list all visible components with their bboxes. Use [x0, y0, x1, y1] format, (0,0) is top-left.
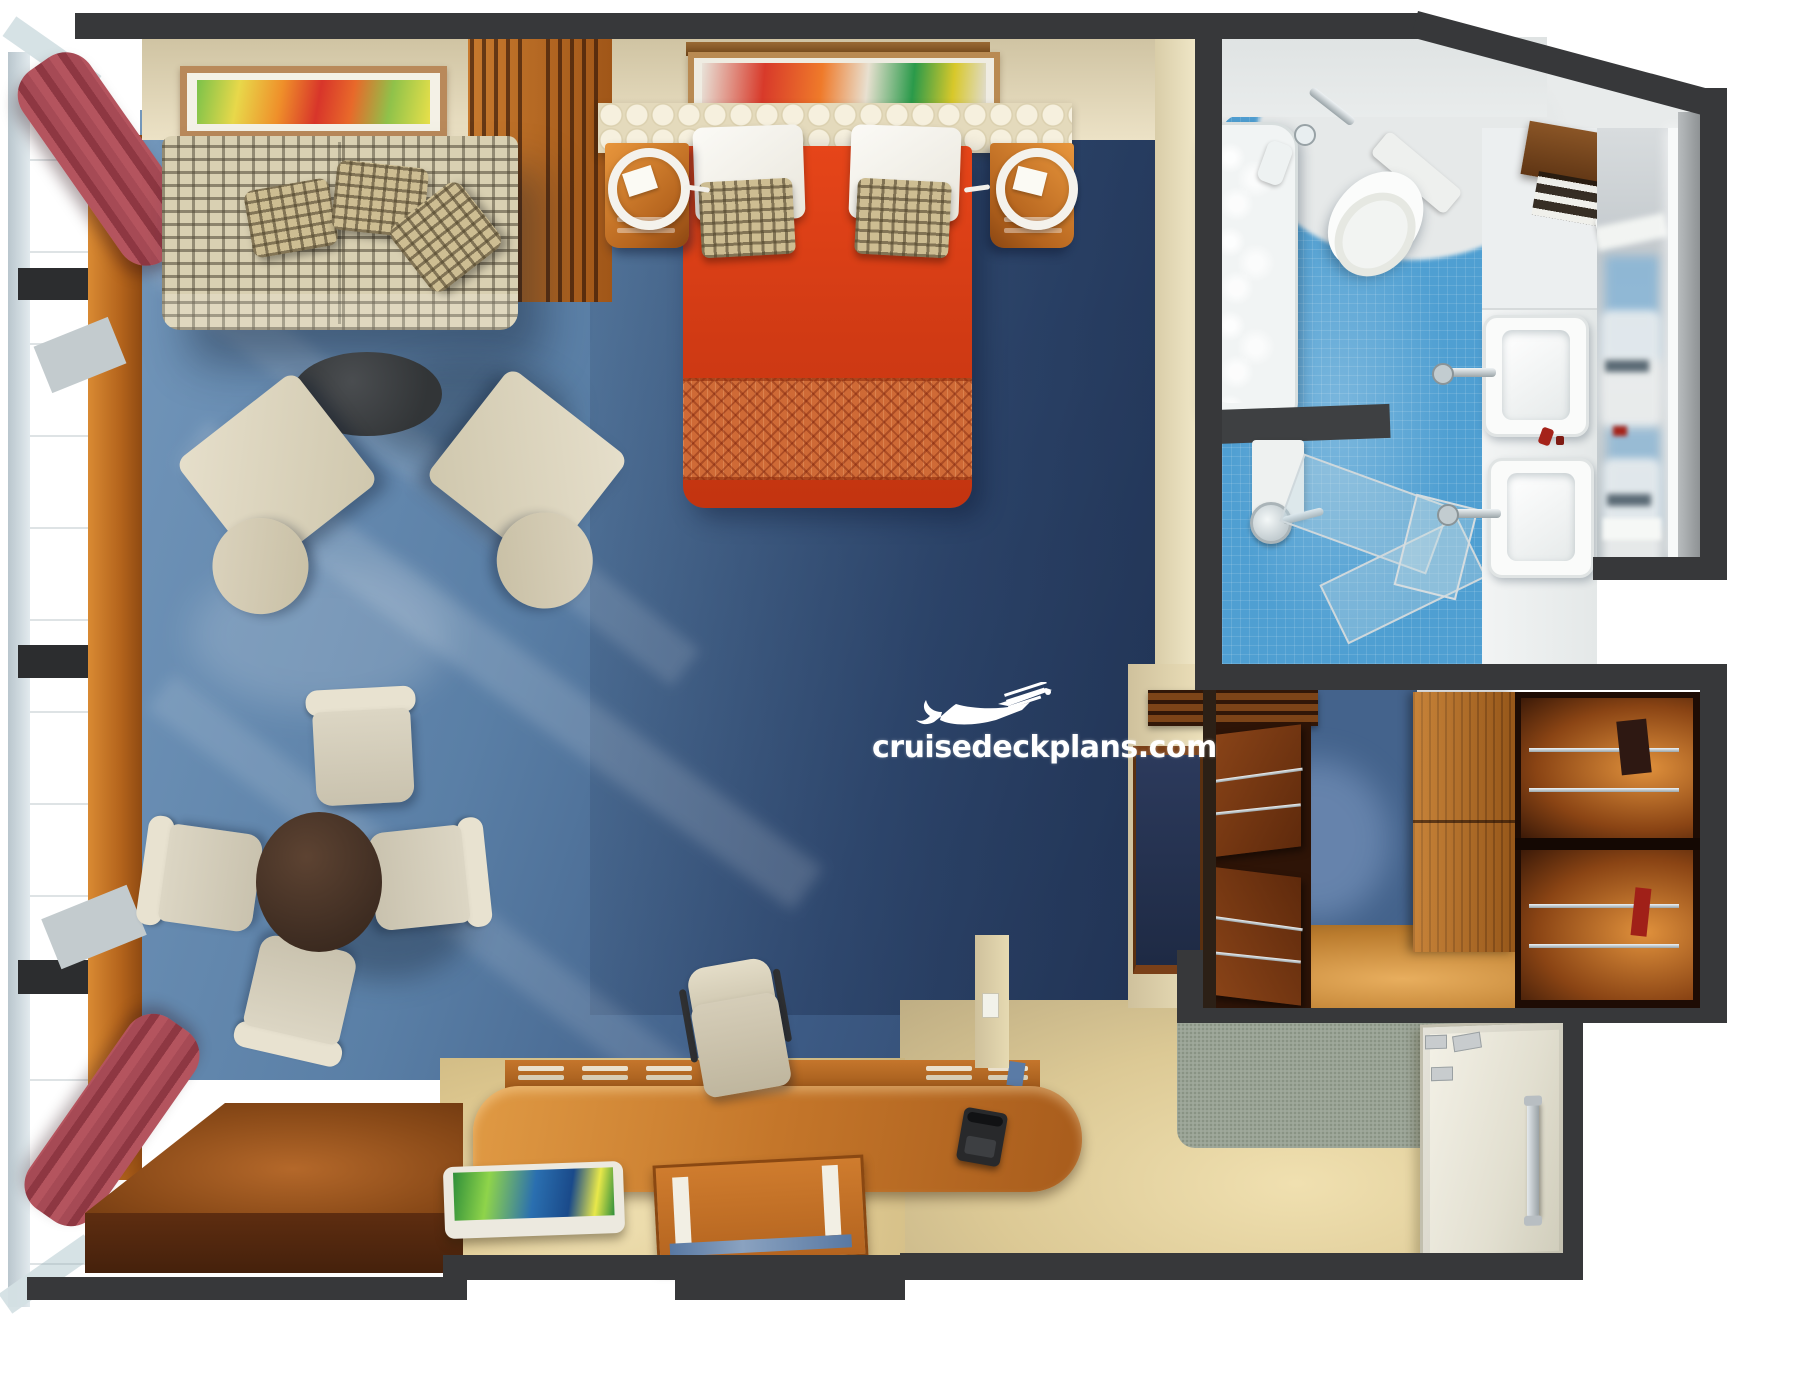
- clothes-rail: [1529, 904, 1679, 908]
- dining-chair-top: [301, 685, 427, 811]
- round-dining-table: [256, 812, 382, 952]
- wall-right-bathroom: [1700, 88, 1727, 580]
- window-bracket: [18, 268, 88, 300]
- shelf-divider: [1515, 838, 1700, 850]
- wall-closet-bottom: [1177, 1008, 1727, 1023]
- cruise-ship-logo-icon: [912, 682, 1062, 732]
- wardrobe-left-column: [1203, 722, 1311, 1008]
- wall-right-entry: [1563, 1023, 1583, 1280]
- floorplan-stage: cruisedeckplans.com: [0, 0, 1800, 1391]
- mirror-reflection-faucet: [1605, 360, 1649, 372]
- drawer-handle: [926, 1066, 972, 1071]
- wardrobe-door-open: [1209, 724, 1301, 857]
- drawer-handle: [582, 1066, 628, 1071]
- lamp-card: [622, 165, 658, 197]
- art-frame-sofa: [180, 66, 447, 138]
- watermark: cruisedeckplans.com: [872, 682, 1102, 766]
- balcony-glass-wall: [8, 52, 30, 1307]
- bed-accent-pillow-left: [698, 178, 796, 259]
- red-soap-cap: [1556, 436, 1564, 445]
- art-image: [702, 63, 986, 108]
- chair-seat: [367, 824, 471, 931]
- telephone-handset: [967, 1111, 1004, 1127]
- picture-tray: [443, 1161, 625, 1239]
- wall-top: [75, 13, 1425, 39]
- sink-bowl: [1507, 473, 1575, 561]
- sink-faucet-knob: [1432, 363, 1454, 385]
- telephone: [956, 1107, 1009, 1168]
- light-switch: [982, 993, 999, 1018]
- bedroom-right-wall-face: [1155, 37, 1195, 664]
- drawer-handle: [518, 1066, 564, 1071]
- mirror-reflection-red: [1613, 426, 1627, 436]
- wall-bottom-mid: [443, 1255, 905, 1280]
- vanity-mirror: [1597, 128, 1668, 560]
- mirror-led-strip: [1668, 128, 1678, 560]
- closet-shelf-bays: [1515, 692, 1700, 1008]
- clothes-rail: [1529, 944, 1679, 948]
- slat-panel: [546, 39, 606, 302]
- window-bracket: [18, 645, 88, 678]
- louvered-vent: [1148, 690, 1318, 726]
- wall-mirror-bottom: [1593, 557, 1727, 580]
- door-hinge: [1431, 1066, 1453, 1081]
- wall-hall-stub: [1177, 950, 1203, 1023]
- sliding-wood-panel: [1413, 692, 1515, 952]
- picture-tray-image: [453, 1167, 615, 1221]
- bed-accent-pillow-right: [854, 178, 952, 259]
- telephone-keys: [964, 1135, 997, 1158]
- wall-entry-bottom: [900, 1253, 1583, 1280]
- clothes-rail: [1529, 748, 1679, 752]
- wall-bathroom-left: [1195, 37, 1222, 664]
- clothes-rail: [1529, 788, 1679, 792]
- blue-folio: [670, 1234, 852, 1257]
- wardrobe-door-open: [1209, 866, 1301, 1005]
- watermark-text: cruisedeckplans.com: [872, 730, 1102, 765]
- chair-seat: [312, 708, 415, 807]
- drawer-handle: [646, 1066, 692, 1071]
- ring-lamp-right: [996, 148, 1078, 230]
- door-handle-mount: [1524, 1095, 1542, 1106]
- ring-lamp-left: [608, 148, 690, 230]
- wall-right-closet: [1700, 690, 1727, 1023]
- shelf-bay-lower: [1521, 850, 1693, 1000]
- chair-seat: [157, 823, 264, 933]
- wall-bath-closet-divider: [1195, 664, 1727, 690]
- mirror-reflection-towel: [1597, 213, 1668, 251]
- sofa-front-edge: [162, 294, 518, 330]
- desk-blue-folder: [1006, 1061, 1025, 1087]
- sink-basin-upper: [1483, 315, 1589, 437]
- dark-garment: [1616, 719, 1651, 776]
- door-lock-plate: [1452, 1032, 1482, 1053]
- tub-faucet-head: [1294, 124, 1316, 146]
- mirror-reflection-bar: [1603, 518, 1661, 540]
- lamp-card: [1013, 166, 1048, 197]
- dining-chair-left: [134, 808, 270, 944]
- window-bracket: [18, 960, 88, 994]
- sink-basin-lower: [1488, 458, 1594, 578]
- tv-panel: [1133, 746, 1203, 974]
- writing-mat: [652, 1155, 868, 1268]
- desk-chair-seat: [690, 991, 793, 1099]
- wall-bottom-left: [27, 1277, 467, 1300]
- paper-strip: [822, 1165, 842, 1236]
- wood-platform-front: [85, 1213, 463, 1273]
- door-hinge: [1425, 1035, 1447, 1050]
- bathroom-right-wall-face: [1678, 112, 1700, 580]
- mirror-reflection-faucet: [1607, 494, 1651, 506]
- entry-door: [1420, 1019, 1569, 1265]
- bath-counter-stub: [1211, 404, 1390, 444]
- shelf-bay-upper: [1521, 698, 1693, 838]
- art-image: [197, 80, 430, 124]
- sink-bowl: [1502, 330, 1570, 420]
- paper-strip: [672, 1177, 692, 1248]
- wall-bottom-desk-lip: [675, 1278, 905, 1300]
- door-handle-mount: [1524, 1215, 1542, 1226]
- bed-foot-band: [683, 378, 972, 480]
- sink-faucet-knob: [1437, 504, 1459, 526]
- panel-seam: [1413, 820, 1515, 823]
- door-handle-bar: [1527, 1099, 1539, 1219]
- mirror-reflection-sink: [1603, 458, 1661, 560]
